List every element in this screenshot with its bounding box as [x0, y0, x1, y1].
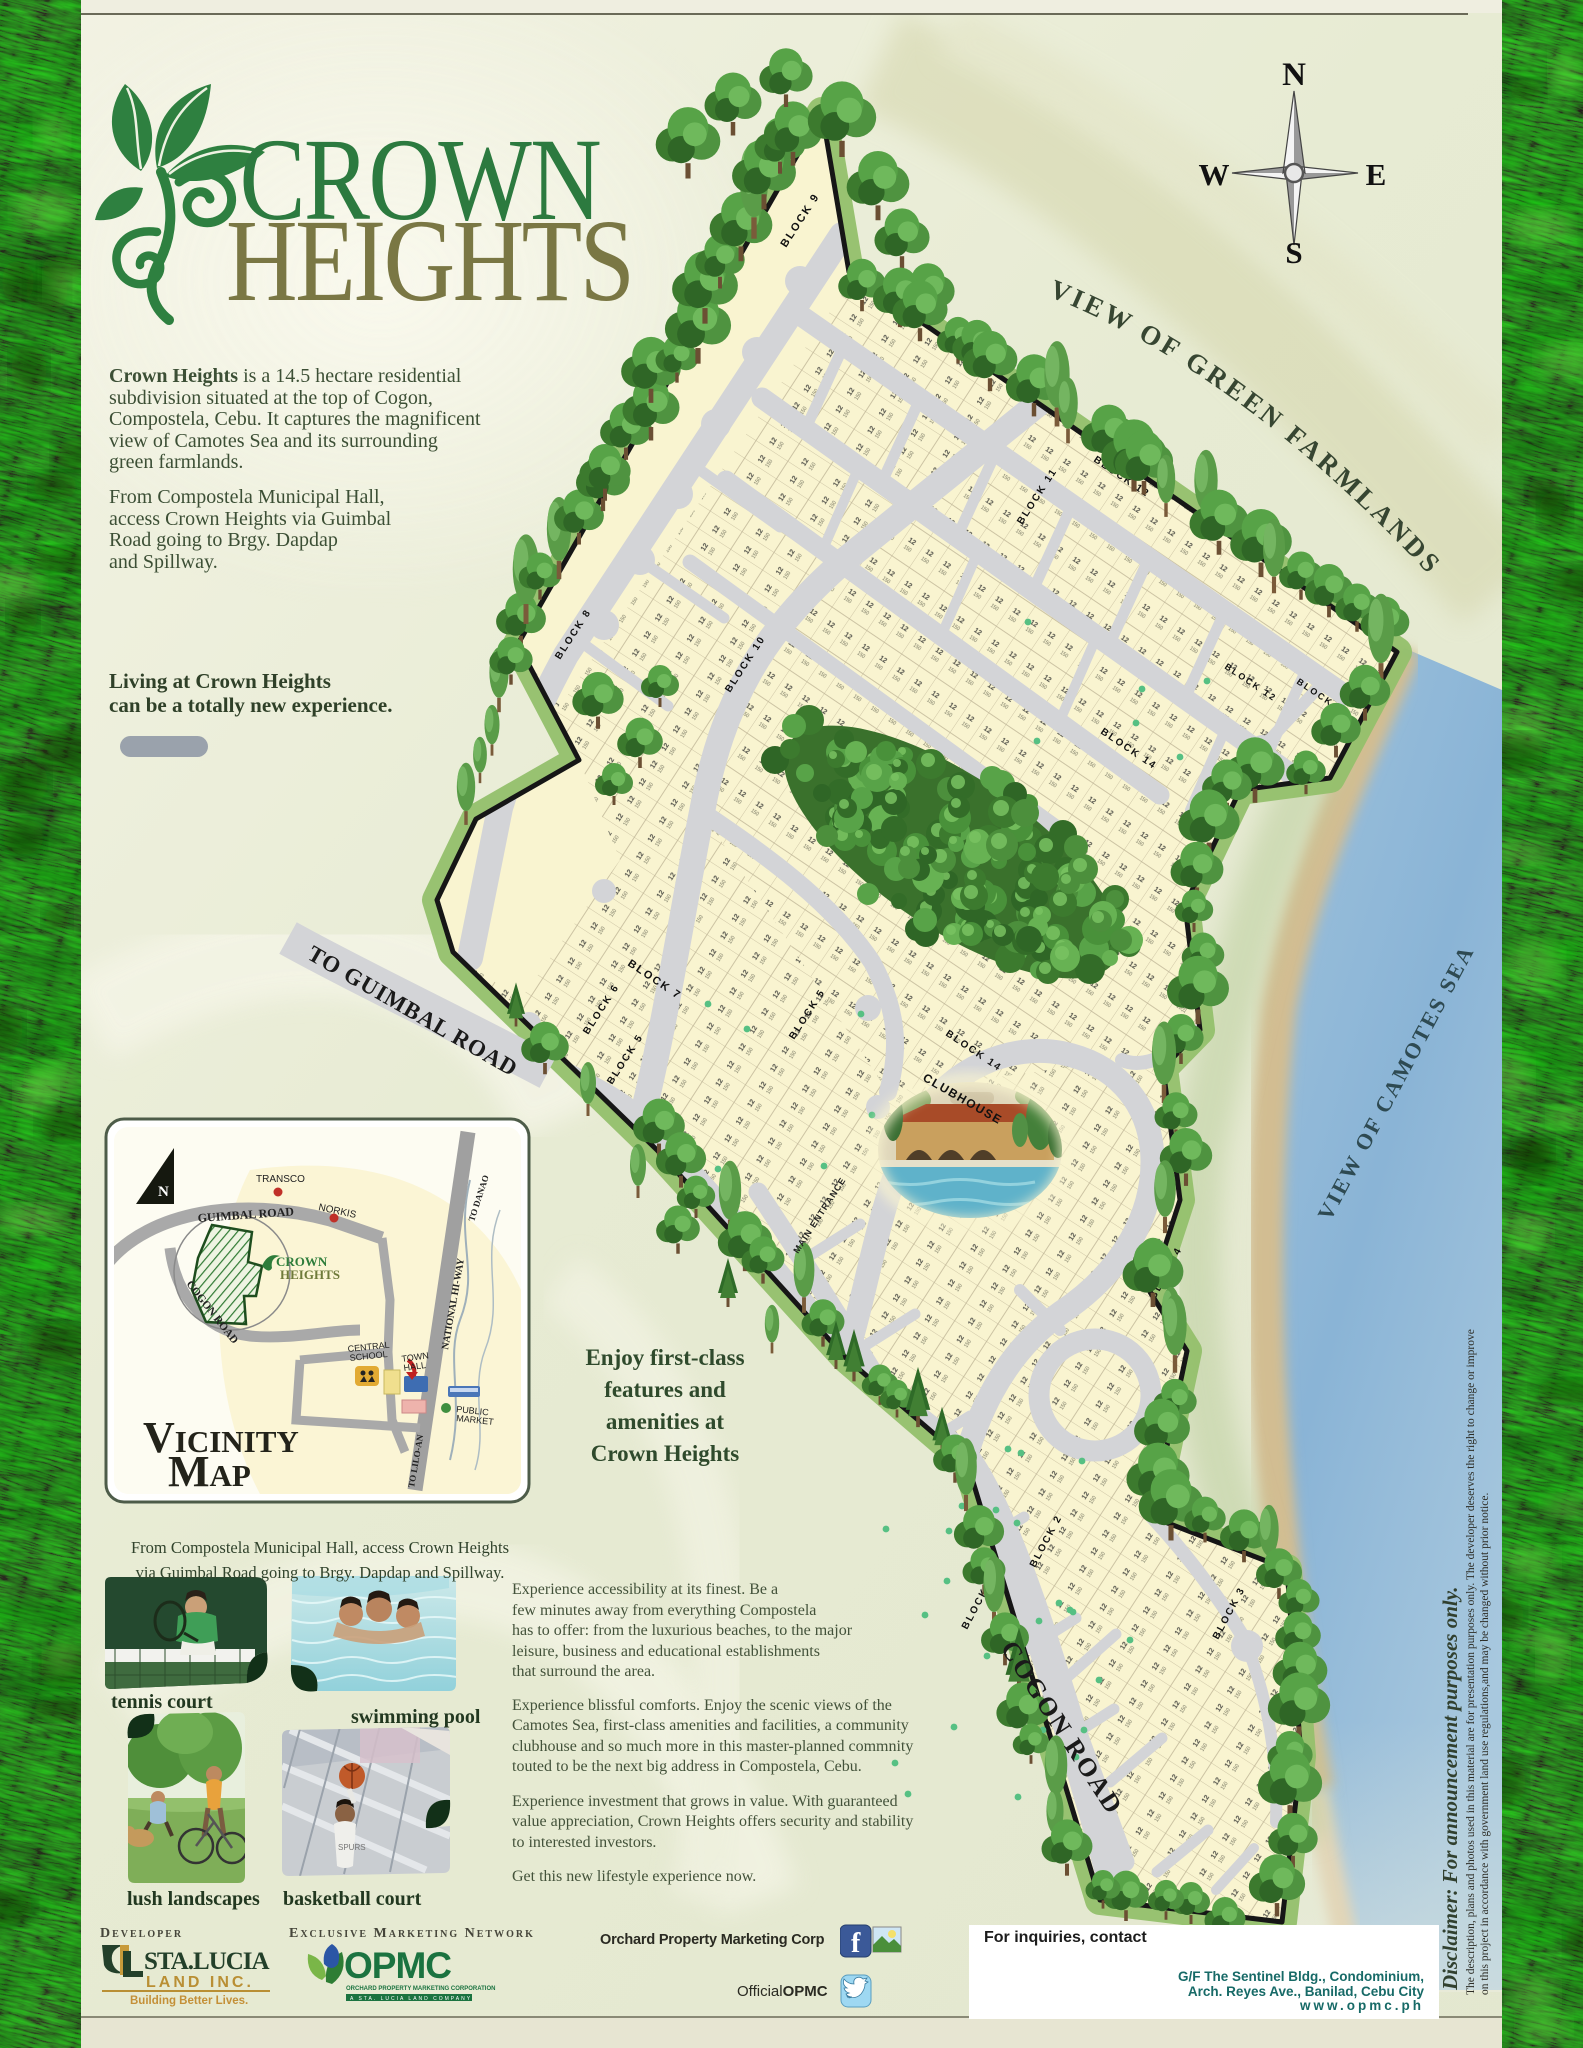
svg-text:A STA. LUCIA LAND COMPANY: A STA. LUCIA LAND COMPANY: [350, 1996, 472, 2002]
svg-text:f: f: [851, 1928, 861, 1959]
svg-text:STA.LUCIA: STA.LUCIA: [144, 1948, 270, 1975]
svg-text:Building Better Lives.: Building Better Lives.: [130, 1995, 248, 2007]
svg-text:LAND INC.: LAND INC.: [146, 1974, 254, 1991]
svg-text:OPMC: OPMC: [344, 1945, 451, 1986]
svg-text:HEIGHTS: HEIGHTS: [226, 195, 632, 326]
svg-text:ORCHARD PROPERTY MARKETING COR: ORCHARD PROPERTY MARKETING CORPORATION: [346, 1986, 495, 1992]
